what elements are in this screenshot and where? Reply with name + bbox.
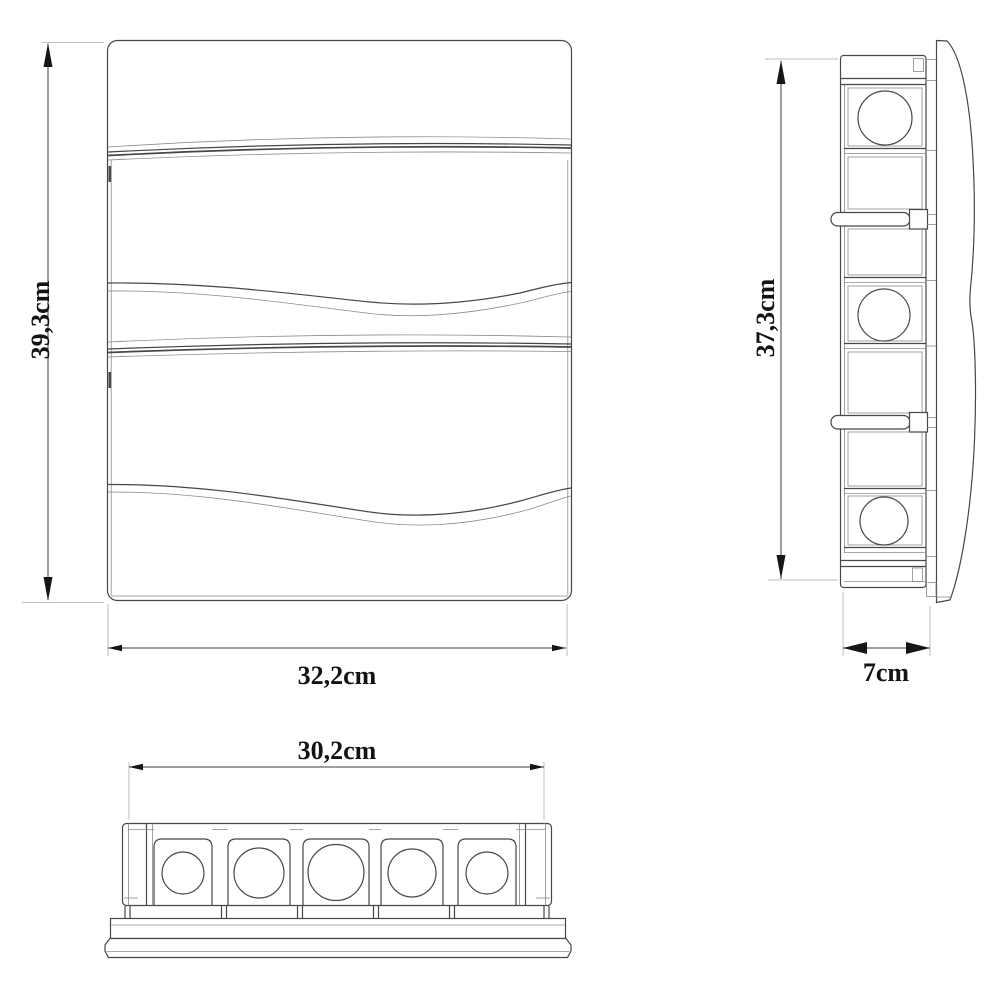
bottom-base-plate-lower	[105, 939, 571, 958]
arrow-right-icon	[530, 764, 544, 770]
side-door-profile	[937, 41, 976, 603]
front-width-dimension-label: 32,2cm	[298, 661, 377, 690]
arrow-left-icon	[108, 645, 122, 651]
technical-drawing-canvas: 39,3cm 32,2cm	[0, 0, 1000, 1000]
bottom-width-dimension: 30,2cm	[129, 736, 544, 820]
side-body-outline	[841, 56, 927, 588]
bottom-support-feet	[125, 906, 549, 918]
arrow-right-icon	[906, 642, 930, 654]
arrow-left-icon	[129, 764, 143, 770]
arrow-up-icon	[777, 60, 786, 84]
technical-drawing-page: 39,3cm 32,2cm	[0, 0, 1000, 1000]
bottom-base-plate-upper	[111, 919, 566, 939]
side-body-door-connectors	[926, 60, 937, 597]
arrow-right-icon	[552, 645, 566, 651]
arrow-down-icon	[44, 577, 53, 601]
side-bottom-connector-tab	[927, 583, 937, 597]
side-depth-dimension-label: 7cm	[863, 658, 910, 687]
side-din-rail-pin-upper	[831, 210, 936, 230]
front-height-dimension: 39,3cm	[22, 43, 104, 603]
side-height-dimension: 37,3cm	[751, 59, 838, 580]
arrow-left-icon	[843, 642, 867, 654]
front-width-dimension: 32,2cm	[108, 604, 567, 690]
side-din-rail-pin-lower	[831, 413, 936, 433]
side-height-dimension-label: 37,3cm	[751, 278, 780, 357]
arrow-up-icon	[44, 43, 53, 67]
arrow-down-icon	[777, 555, 786, 579]
front-height-dimension-label: 39,3cm	[26, 280, 55, 359]
bottom-width-dimension-label: 30,2cm	[298, 736, 377, 765]
side-depth-dimension: 7cm	[843, 592, 930, 687]
side-view	[831, 41, 976, 603]
bottom-view	[105, 824, 571, 958]
front-view	[108, 41, 572, 601]
